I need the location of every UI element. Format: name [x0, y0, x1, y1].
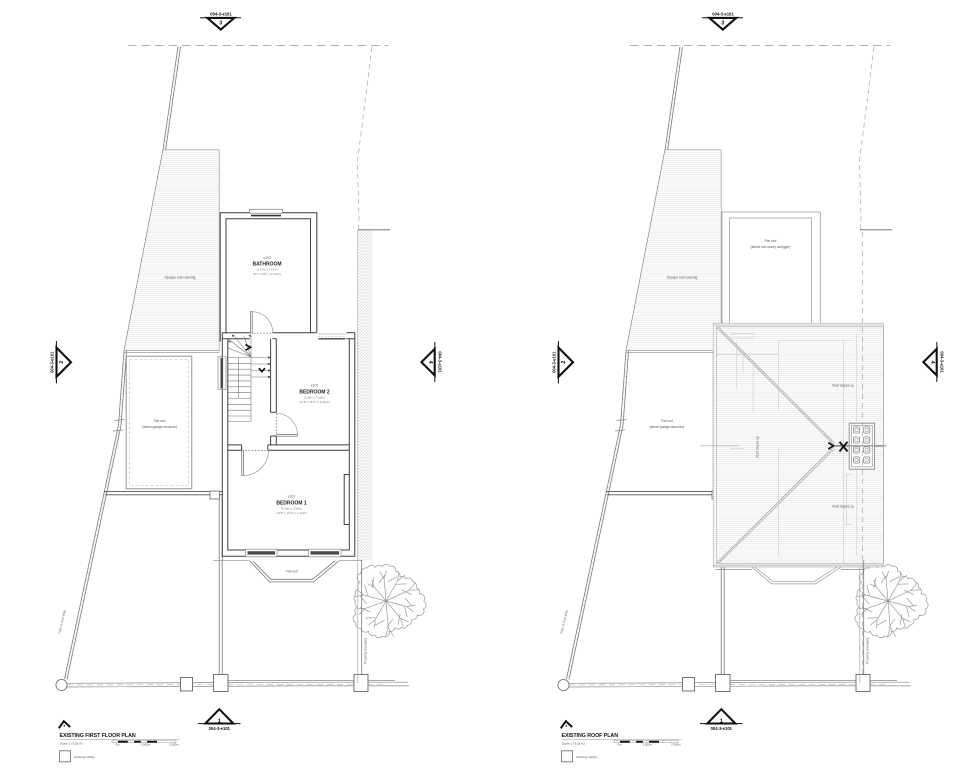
- svg-text:0m: 0m: [618, 743, 623, 747]
- svg-text:(above two-storey outrigger): (above two-storey outrigger): [751, 245, 791, 249]
- svg-text:Flat roof: Flat roof: [661, 419, 673, 423]
- svg-text:Property boundary: Property boundary: [866, 637, 870, 664]
- svg-text:2: 2: [561, 361, 567, 364]
- svg-text:e101: e101: [288, 495, 296, 499]
- svg-text:Scale 1:75 @ A1: Scale 1:75 @ A1: [562, 742, 585, 746]
- svg-text:e103: e103: [263, 256, 271, 260]
- svg-text:(11'8" x 11'6") x 2.4m(h): (11'8" x 11'6") x 2.4m(h): [299, 400, 329, 404]
- svg-text:Existing wall(s): Existing wall(s): [75, 755, 96, 759]
- svg-text:Flat roof: Flat roof: [154, 419, 166, 423]
- svg-text:004-3-e101: 004-3-e101: [551, 351, 556, 373]
- svg-text:(2.01m x 1.72m): (2.01m x 1.72m): [256, 268, 277, 272]
- svg-text:2.000m: 2.000m: [169, 743, 179, 747]
- svg-text:0m: 0m: [116, 743, 121, 747]
- svg-text:EXISTING FIRST FLOOR PLAN: EXISTING FIRST FLOOR PLAN: [60, 733, 136, 739]
- svg-text:2: 2: [59, 361, 65, 364]
- svg-text:004-3-e101: 004-3-e101: [210, 11, 232, 16]
- svg-text:(above garage structure): (above garage structure): [142, 425, 177, 429]
- svg-text:BEDROOM 2: BEDROOM 2: [299, 389, 330, 395]
- svg-text:(13'9" x 11'8") x 2.4m(h): (13'9" x 11'8") x 2.4m(h): [276, 511, 307, 515]
- svg-text:(3.55m x 3.50m): (3.55m x 3.50m): [304, 396, 325, 400]
- svg-text:Roof slopes up: Roof slopes up: [832, 384, 853, 388]
- svg-text:BATHROOM: BATHROOM: [252, 261, 281, 267]
- svg-text:3: 3: [721, 20, 724, 26]
- svg-text:004-3-e101: 004-3-e101: [712, 11, 734, 16]
- svg-text:(4.20m x 3.55m): (4.20m x 3.55m): [281, 507, 302, 511]
- svg-text:004-3-e101: 004-3-e101: [438, 351, 443, 373]
- svg-text:1.000m: 1.000m: [643, 743, 653, 747]
- svg-text:Flat roof: Flat roof: [286, 570, 298, 574]
- svg-text:Opaque roof covering: Opaque roof covering: [667, 276, 698, 280]
- svg-text:EXISTING ROOF PLAN: EXISTING ROOF PLAN: [562, 733, 619, 739]
- svg-text:004-3-e101: 004-3-e101: [49, 351, 54, 373]
- svg-text:2.000m: 2.000m: [671, 743, 681, 747]
- svg-text:Roof slopes up: Roof slopes up: [756, 436, 760, 457]
- svg-text:Scale 1:75 @ A1: Scale 1:75 @ A1: [60, 742, 83, 746]
- svg-text:Flat roof: Flat roof: [765, 239, 777, 243]
- svg-text:BEDROOM 1: BEDROOM 1: [276, 500, 307, 506]
- svg-text:1: 1: [720, 718, 723, 724]
- svg-text:004-3-e101: 004-3-e101: [711, 726, 733, 731]
- svg-text:Opaque roof covering: Opaque roof covering: [165, 276, 196, 280]
- svg-text:(6'7" x 5'8") x 2.4m(h): (6'7" x 5'8") x 2.4m(h): [253, 272, 281, 276]
- svg-text:004-3-e101: 004-3-e101: [209, 726, 231, 731]
- svg-text:004-3-e101: 004-3-e101: [940, 351, 945, 373]
- svg-text:e102: e102: [311, 384, 319, 388]
- svg-text:1.000m: 1.000m: [141, 743, 151, 747]
- svg-text:Property boundary: Property boundary: [364, 637, 368, 664]
- svg-text:Roof slopes up: Roof slopes up: [832, 505, 853, 509]
- svg-text:1: 1: [218, 718, 221, 724]
- svg-text:3: 3: [219, 20, 222, 26]
- svg-text:Existing wall(s): Existing wall(s): [577, 755, 598, 759]
- svg-text:(above garage structure): (above garage structure): [650, 425, 685, 429]
